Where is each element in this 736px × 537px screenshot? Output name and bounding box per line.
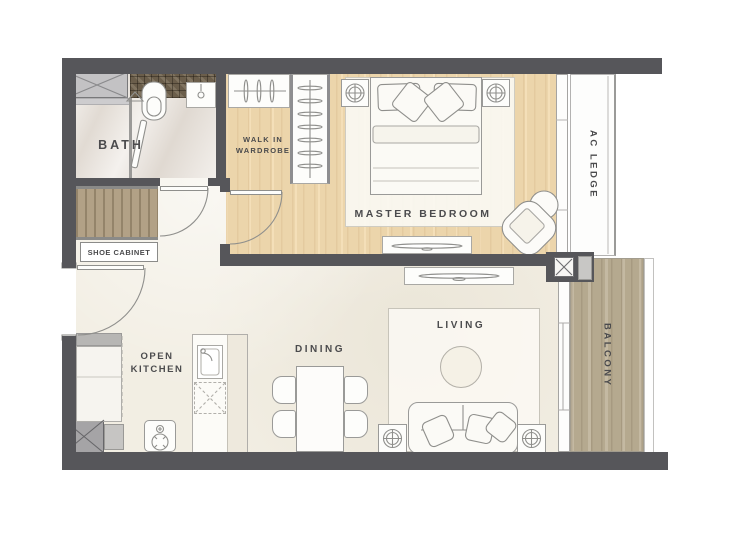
balcony-label: BALCONY (570, 258, 644, 452)
wall-bottom (62, 452, 668, 470)
dining-chair (272, 410, 296, 438)
side-table (378, 424, 407, 453)
wall-bath-right (216, 58, 226, 186)
sofa (408, 402, 518, 454)
kitchen-counter-top-strip (76, 333, 122, 346)
living-balcony-window (558, 266, 570, 452)
wall-bath-bottom-stub (208, 178, 216, 186)
bed (370, 77, 482, 195)
wardrobe-label-line2: WARDROBE (225, 145, 301, 156)
wall-left-upper (62, 58, 76, 268)
side-table (517, 424, 546, 453)
wall-top (62, 58, 662, 74)
wall-bedroom-living (220, 254, 548, 266)
column-stub (104, 424, 124, 450)
dining-chair (344, 410, 368, 438)
nightstand (482, 79, 510, 107)
wardrobe-label: WALK IN WARDROBE (225, 134, 301, 156)
dining-chair (272, 376, 296, 404)
wardrobe-unit-side (290, 74, 330, 184)
bath-label: BATH (76, 138, 166, 152)
entrance-door (77, 265, 144, 270)
open-kitchen-label-line2: KITCHEN (112, 363, 202, 376)
shoe-cabinet-label: SHOE CABINET (80, 242, 158, 262)
dining-label: DINING (272, 344, 368, 355)
wardrobe-label-line1: WALK IN (225, 134, 301, 145)
shoe-cabinet (76, 186, 158, 240)
open-kitchen-label: OPEN KITCHEN (112, 350, 202, 376)
bedroom-door (230, 190, 282, 195)
open-kitchen-label-line1: OPEN (112, 350, 202, 363)
bath-door (160, 186, 208, 191)
wall-bath-bottom (76, 178, 160, 186)
tv-console-bedroom (382, 236, 472, 254)
bedroom-window (556, 74, 568, 254)
wall-left-lower (62, 336, 76, 470)
stove-icon (144, 420, 176, 452)
living-label: LIVING (413, 320, 509, 331)
sink-icon (186, 82, 216, 108)
dishwasher-icon (194, 382, 226, 414)
ac-ledge-label: AC LEDGE (570, 74, 616, 256)
master-bedroom-label: MASTER BEDROOM (343, 208, 503, 220)
floor-plan: BATH WALK IN WARDROBE MASTER BEDROOM AC … (0, 0, 736, 537)
balcony-outer-band (644, 258, 654, 454)
tv-console-living (404, 267, 514, 285)
wall-bedroom-door-stub-top (220, 178, 230, 192)
wardrobe-unit-top (228, 74, 290, 108)
island-side-strip (227, 335, 247, 452)
nightstand (341, 79, 369, 107)
coffee-table (440, 346, 482, 388)
dining-table (296, 366, 344, 452)
dining-chair (344, 376, 368, 404)
